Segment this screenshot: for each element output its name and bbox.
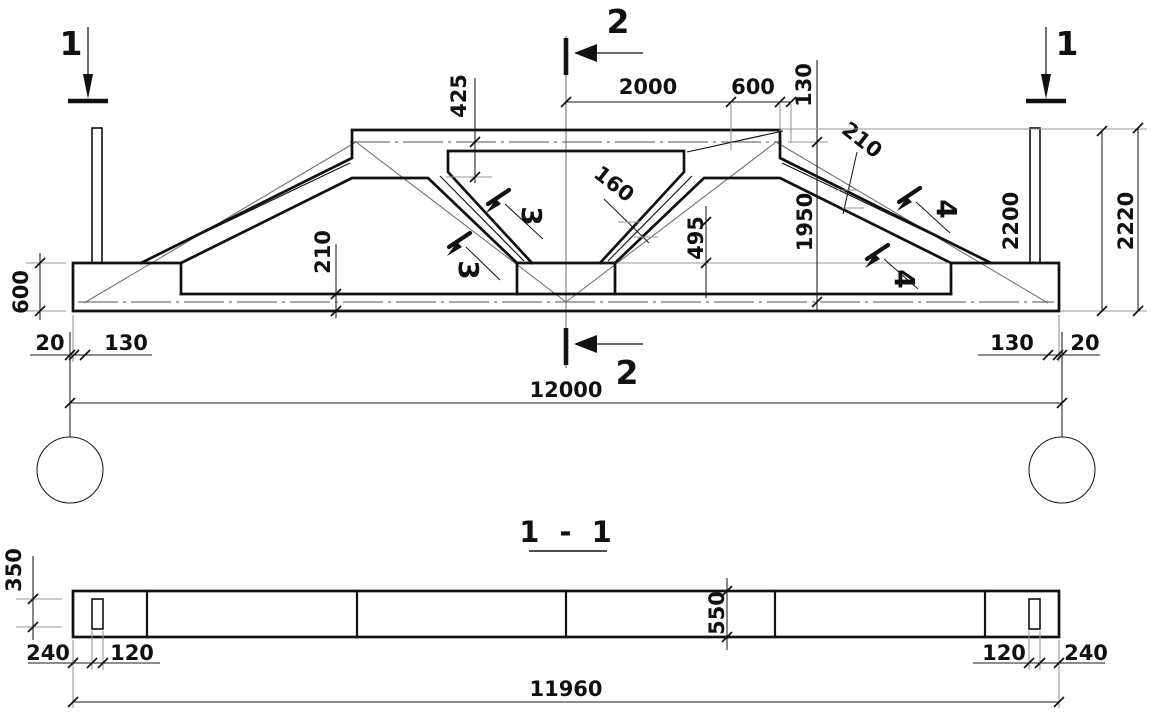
section-4-label: 4 — [888, 269, 921, 288]
drawing-sheet: 2000 600 130 425 160 495 1950 210 — [0, 0, 1161, 718]
dim-120-right-label: 120 — [982, 641, 1026, 665]
section-marker-2-top: 2 — [566, 2, 643, 75]
lifting-loop-right — [1030, 128, 1040, 263]
grid-circle-right — [1029, 437, 1095, 503]
section-marker-1-right: 1 — [1026, 24, 1078, 101]
dim-240-left-label: 240 — [26, 641, 70, 665]
section-2-label: 2 — [616, 353, 639, 392]
dim-2000-label: 2000 — [619, 75, 677, 99]
section-2-label: 2 — [607, 2, 630, 41]
dim-20-right-label: 20 — [1070, 331, 1099, 355]
dim-600-left-label: 600 — [9, 270, 33, 314]
arrow-left-icon — [574, 335, 597, 353]
section-marker-1-left: 1 — [60, 24, 108, 101]
lifting-loop-left — [92, 128, 102, 263]
dim-2220-label: 2220 — [1114, 192, 1138, 250]
truss-girder-drawing: 2000 600 130 425 160 495 1950 210 — [0, 0, 1161, 718]
section-1-1-view: 1 - 1 350 240 120 120 240 — [2, 515, 1108, 708]
dim-20-left-label: 20 — [35, 331, 64, 355]
dim-210-diag-label: 210 — [837, 117, 886, 163]
dim-160-label: 160 — [589, 161, 638, 207]
dim-600-top-label: 600 — [731, 75, 775, 99]
dim-210-chord-label: 210 — [311, 230, 335, 274]
section-3-label: 3 — [452, 260, 485, 279]
arrow-down-icon — [83, 74, 93, 99]
dim-160-leader — [604, 199, 649, 243]
elevation-dimensions: 2000 600 130 425 160 495 1950 210 — [9, 60, 1147, 408]
section-1-label: 1 — [60, 24, 83, 63]
grid-circle-left — [37, 437, 103, 503]
dim-11960-label: 11960 — [529, 677, 602, 701]
lifting-loop-plan-left — [92, 599, 103, 629]
right-web-axis — [566, 142, 776, 302]
dim-240-right-label: 240 — [1064, 641, 1108, 665]
dim-1950-label: 1950 — [793, 193, 817, 251]
dim-12000-label: 12000 — [529, 378, 602, 402]
arrow-left-icon — [574, 44, 597, 62]
dim-425-label: 425 — [447, 74, 471, 118]
section-4-label: 4 — [930, 199, 963, 218]
section-3-label: 3 — [515, 206, 548, 225]
dim-495-label: 495 — [684, 216, 708, 260]
dim-2200-label: 2200 — [999, 192, 1023, 250]
section-cut-4-lower: 4 — [865, 245, 921, 289]
dim-130-left-label: 130 — [104, 331, 148, 355]
dim-350-label: 350 — [2, 548, 26, 592]
dim-120-left-label: 120 — [110, 641, 154, 665]
section-1-label: 1 — [1056, 24, 1079, 63]
dim-130-right-label: 130 — [990, 331, 1034, 355]
dim-130-top-label: 130 — [792, 63, 816, 107]
section-1-1-title: 1 - 1 — [519, 515, 617, 549]
arrow-down-icon — [1041, 74, 1051, 99]
dim-550-label: 550 — [705, 591, 729, 635]
section-cut-4-upper: 4 — [897, 188, 963, 233]
lifting-loop-plan-right — [1029, 599, 1040, 629]
